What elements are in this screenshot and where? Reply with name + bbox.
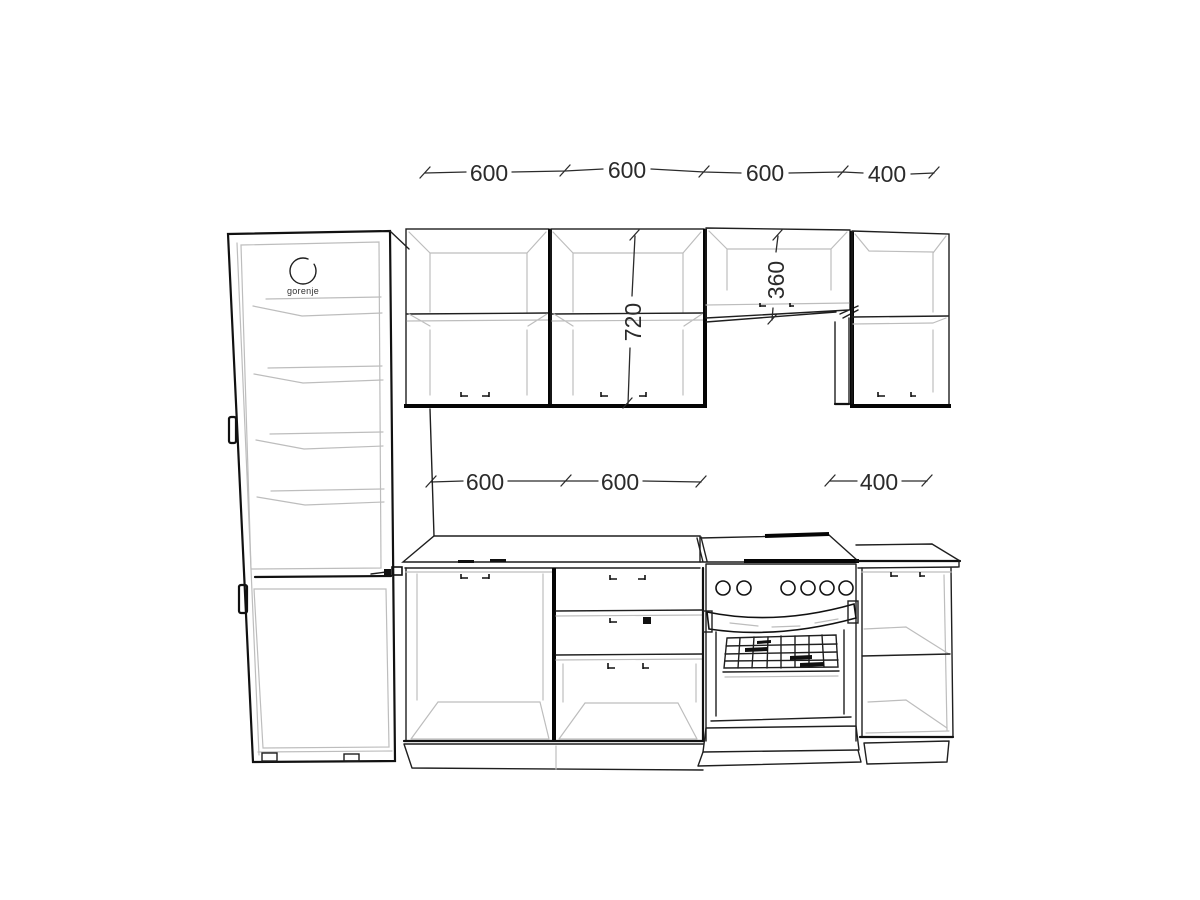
hinge-marks — [878, 392, 916, 397]
brand-logo-circle — [290, 258, 316, 284]
dim-label-mid-3: 400 — [860, 469, 898, 495]
side-filler-panel — [835, 318, 849, 404]
fridge-shelf-lines — [253, 297, 384, 505]
kitchen-elevation-drawing: 600 600 600 400 gore — [0, 0, 1200, 900]
refrigerator: gorenje — [228, 231, 409, 762]
stove-knobs — [716, 581, 853, 595]
hinge-marks — [601, 392, 646, 397]
oven-door-bottom — [711, 717, 851, 721]
cooktop — [697, 534, 859, 562]
open-base-cabinet — [860, 568, 953, 764]
dimension-height-360: 360 — [763, 230, 789, 324]
dimension-row-middle: 600 600 400 — [426, 469, 932, 495]
wall-corner-line — [430, 409, 434, 536]
stove — [697, 534, 861, 766]
hinge-marks — [891, 572, 925, 577]
oven-handle — [703, 601, 858, 632]
fridge-foot-right — [344, 754, 359, 761]
dim-label-top-4: 400 — [868, 161, 906, 187]
fridge-door-split — [255, 576, 391, 577]
dim-label-top-1: 600 — [470, 160, 508, 186]
hinge-marks — [461, 574, 489, 579]
plinth-right — [864, 741, 949, 764]
dim-label-top-3: 600 — [746, 160, 784, 186]
dim-label-360: 360 — [763, 261, 789, 299]
fridge-foot-left — [262, 753, 277, 761]
stove-drawer — [698, 726, 861, 766]
oven-window — [716, 630, 844, 716]
countertop-right — [856, 544, 960, 568]
dimension-row-top: 600 600 600 400 — [420, 157, 939, 187]
dim-label-mid-1: 600 — [466, 469, 504, 495]
plinth-left — [404, 744, 703, 770]
brand-logo-text: gorenje — [287, 286, 319, 296]
wall-cabinet-1 — [406, 229, 549, 406]
drawer-cabinet — [556, 568, 703, 741]
dimension-height-720: 720 — [620, 230, 646, 408]
dim-label-720: 720 — [620, 303, 646, 341]
dim-label-mid-2: 600 — [601, 469, 639, 495]
fridge-handle-upper — [229, 417, 236, 443]
dim-label-top-2: 600 — [608, 157, 646, 183]
wall-cabinet-4 — [852, 231, 949, 406]
drawing-canvas: 600 600 600 400 gore — [0, 0, 1200, 900]
base-cabinet-1 — [406, 568, 554, 741]
countertop-left — [403, 536, 700, 568]
hinge-marks — [461, 392, 489, 397]
